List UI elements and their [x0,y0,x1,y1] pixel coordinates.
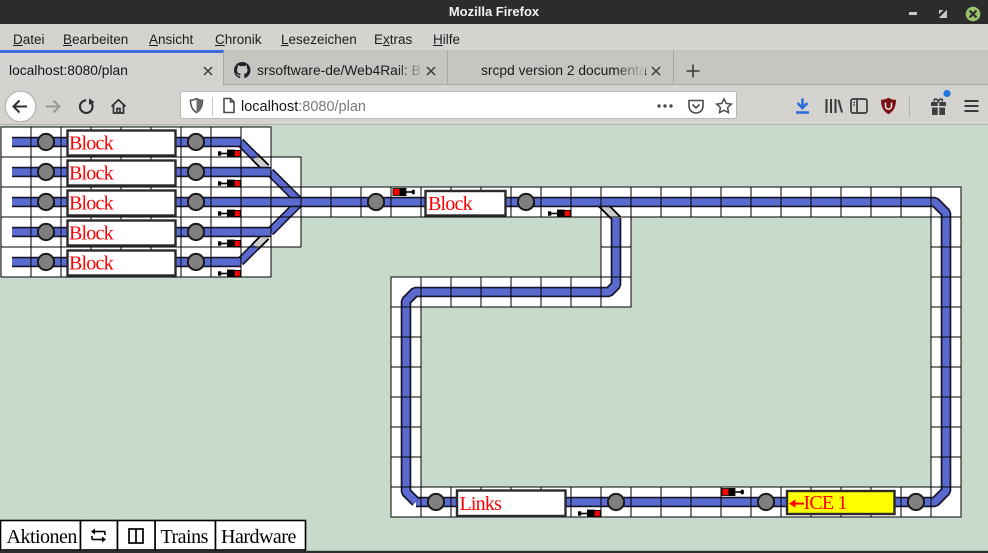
svg-text:Block: Block [428,193,473,215]
svg-text:Links: Links [460,493,503,515]
svg-text:Block: Block [69,133,114,155]
svg-text:ICE 1: ICE 1 [804,492,847,514]
svg-text:Block: Block [69,253,114,275]
svg-text:Block: Block [69,223,114,245]
svg-text:Aktionen: Aktionen [7,526,78,548]
svg-text:Trains: Trains [161,526,209,548]
svg-text:Block: Block [69,163,114,185]
svg-text:Hardware: Hardware [221,526,296,548]
svg-text:Block: Block [69,193,114,215]
